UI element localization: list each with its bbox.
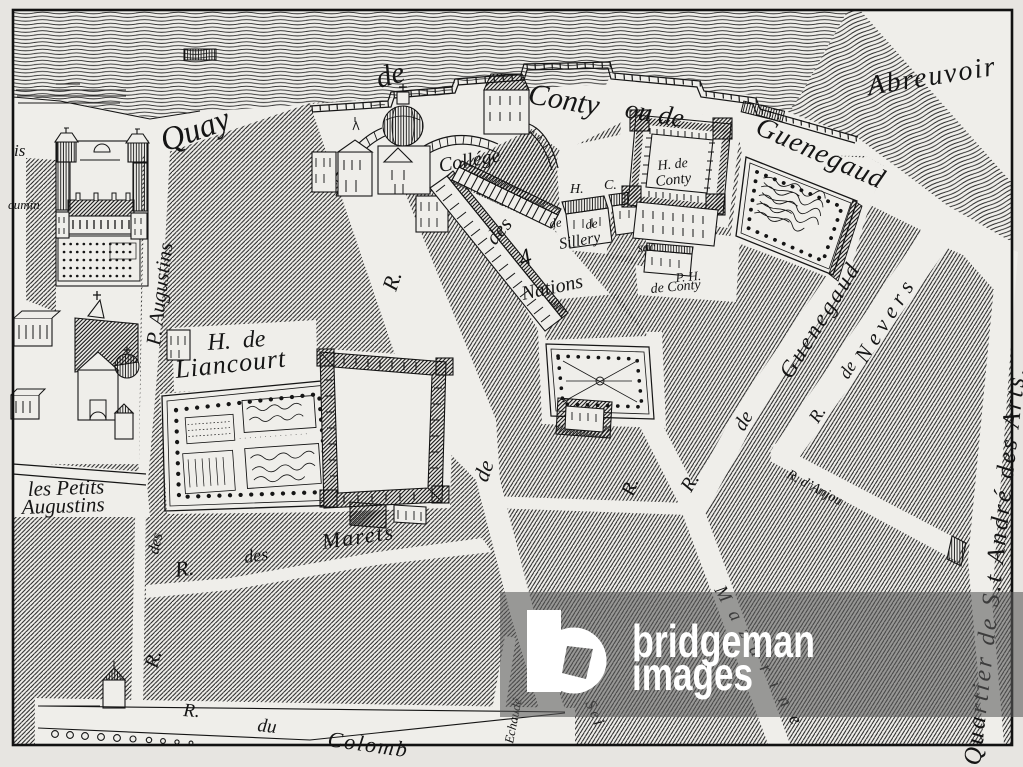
svg-text:Augustins: Augustins: [19, 492, 105, 519]
svg-text:H.: H.: [569, 182, 584, 197]
svg-text:des: des: [243, 544, 270, 567]
svg-text:R.: R.: [182, 700, 201, 722]
svg-text:R.: R.: [172, 555, 195, 583]
svg-text:images: images: [632, 648, 753, 700]
svg-text:sac: sac: [637, 239, 656, 255]
svg-text:is: is: [14, 141, 26, 160]
svg-text:de: de: [548, 214, 562, 231]
svg-text:C.: C.: [604, 178, 617, 193]
svg-text:du: du: [256, 715, 277, 738]
